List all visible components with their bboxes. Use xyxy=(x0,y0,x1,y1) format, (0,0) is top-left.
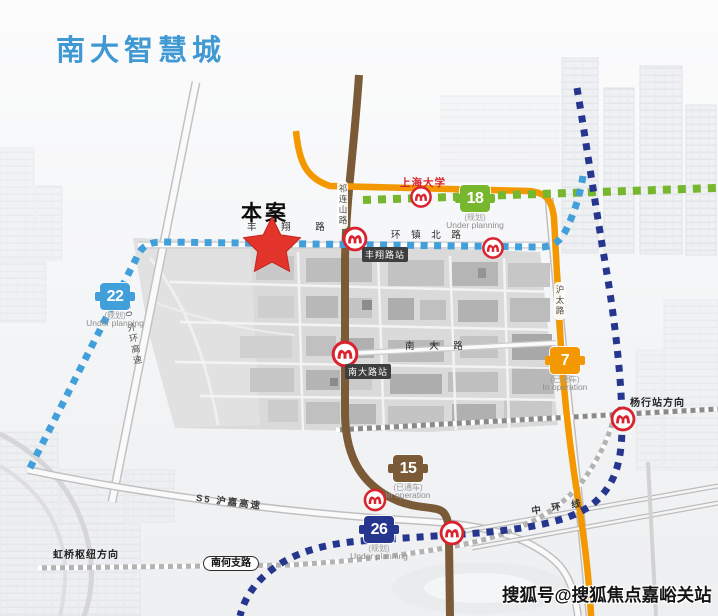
background-building-campus xyxy=(440,95,560,183)
station-label-shanghai-university: 上海大学 xyxy=(400,175,446,190)
metro-station-icon-huanzhen xyxy=(483,238,502,257)
station-label-nanda-road: 南大路站 xyxy=(345,364,391,379)
road-label-nanhe: 南何支路 xyxy=(203,556,259,571)
metro-station-icon-yanghang xyxy=(612,408,634,430)
watermark: 搜狐号@搜狐焦点嘉峪关站 xyxy=(502,582,712,607)
page-title: 南大智慧城 xyxy=(56,27,226,69)
line-7-badge: 7 xyxy=(550,347,580,374)
road-label-hutai: 沪太路 xyxy=(554,282,565,320)
metro-station-icon-nanda-road xyxy=(333,342,357,366)
star-icon xyxy=(236,211,308,283)
line-15-number: 15 xyxy=(400,460,417,478)
line-26-number: 26 xyxy=(371,521,388,539)
line-22-badge: 22 xyxy=(100,283,130,310)
background-buildings-top-left xyxy=(0,148,62,322)
line-18-badge: 18 xyxy=(460,185,490,212)
station-label-fengxiang-road: 丰翔路站 xyxy=(362,247,408,262)
line-18-status-en: Under planning xyxy=(430,220,520,230)
metro-station-icon-line26 xyxy=(441,522,463,544)
line-7-status-en: In operation xyxy=(520,382,610,392)
line-18-number: 18 xyxy=(467,190,484,208)
line-22-status-en: Under planning xyxy=(70,318,160,328)
road-label-qilianshan: 祁连山路 xyxy=(337,181,348,229)
transit-location-map: 南大智慧城 丰 翔 路 环 镇 北 路 南 大 路 祁连山路 沪太路 S20 外… xyxy=(0,0,718,616)
background-buildings-bottom-left xyxy=(0,432,174,616)
background-buildings-top-right xyxy=(562,58,716,255)
metro-station-icon-shanghai-university xyxy=(411,187,430,206)
line-26-badge: 26 xyxy=(364,516,394,543)
line-15-badge: 15 xyxy=(393,455,423,482)
line-26-status-en: Under planning xyxy=(334,551,424,561)
road-label-nanda: 南 大 路 xyxy=(405,338,469,352)
line-22-number: 22 xyxy=(107,288,124,306)
background-buildings-right xyxy=(636,300,718,470)
line-15-status-en: In operation xyxy=(363,490,453,500)
direction-label-yanghang: 杨行站方向 xyxy=(630,394,685,409)
line-7-number: 7 xyxy=(561,352,569,370)
direction-label-hongqiao: 虹桥枢纽方向 xyxy=(53,546,119,561)
